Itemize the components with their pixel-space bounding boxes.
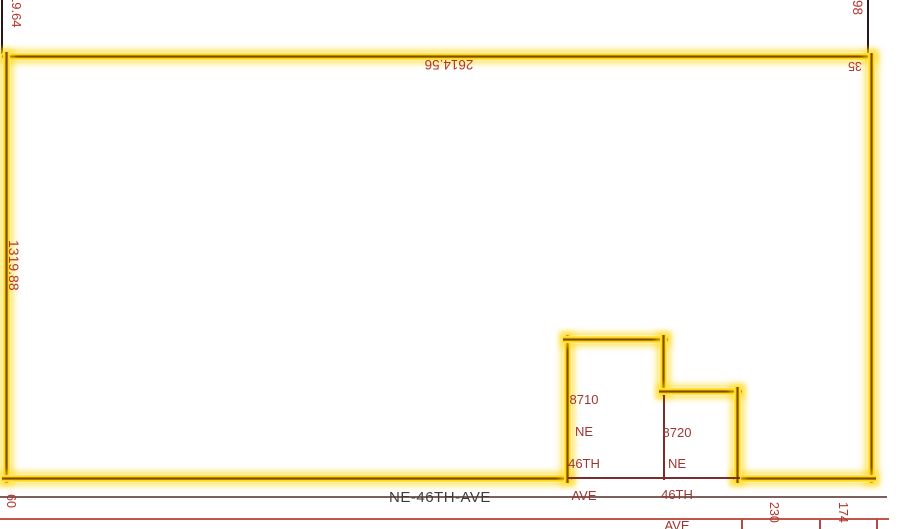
street-south-edge-line [0, 518, 889, 520]
parcel-label-8720-line2: NE [655, 456, 699, 472]
notch-8720-north-edge [659, 387, 742, 396]
parcel-label-8720-line4: AVE [655, 518, 699, 529]
parcel-label-8710-line4: AVE [563, 488, 605, 504]
dim-west-upper: 19.64 [10, 0, 23, 28]
dim-street-width: 60 [4, 494, 17, 508]
parcel-boundary-east [867, 53, 876, 483]
parcel-label-8710-line1: 8710 [563, 392, 605, 408]
notch-8720-east-edge [733, 387, 742, 483]
section-line-northwest [1, 0, 3, 54]
parcel-label-8720-line3: 46TH [655, 487, 699, 503]
frontage-tick-3 [876, 519, 878, 529]
parcel-label-8710-line3: 46TH [563, 456, 605, 472]
notch-8710-north-edge [563, 335, 668, 344]
dim-northeast-inner: 35 [848, 59, 862, 72]
section-line-northeast [867, 0, 869, 55]
dim-north: 2614.56 [413, 58, 485, 71]
dim-west: 1319.88 [7, 240, 20, 291]
parcel-boundary-south-east-segment [733, 474, 876, 483]
parcel-label-8720-line1: 8720 [655, 425, 699, 441]
parcel-map-canvas[interactable]: 19.64 1319.88 2614.56 98 35 60 230 174 8… [0, 0, 900, 529]
dim-south-frontage-1: 230 [767, 502, 780, 523]
street-name-label: NE-46TH-AVE [375, 489, 505, 506]
dim-east-upper: 98 [851, 0, 864, 15]
parcel-label-8710: 8710 NE 46TH AVE [563, 376, 605, 520]
dim-south-frontage-2: 174 [836, 502, 849, 523]
parcel-label-8720: 8720 NE 46TH AVE [655, 409, 699, 529]
parcel-label-8710-line2: NE [563, 424, 605, 440]
frontage-tick-1 [741, 519, 743, 529]
parcel-boundary-south-west-segment [2, 474, 572, 483]
frontage-tick-2 [819, 520, 821, 529]
